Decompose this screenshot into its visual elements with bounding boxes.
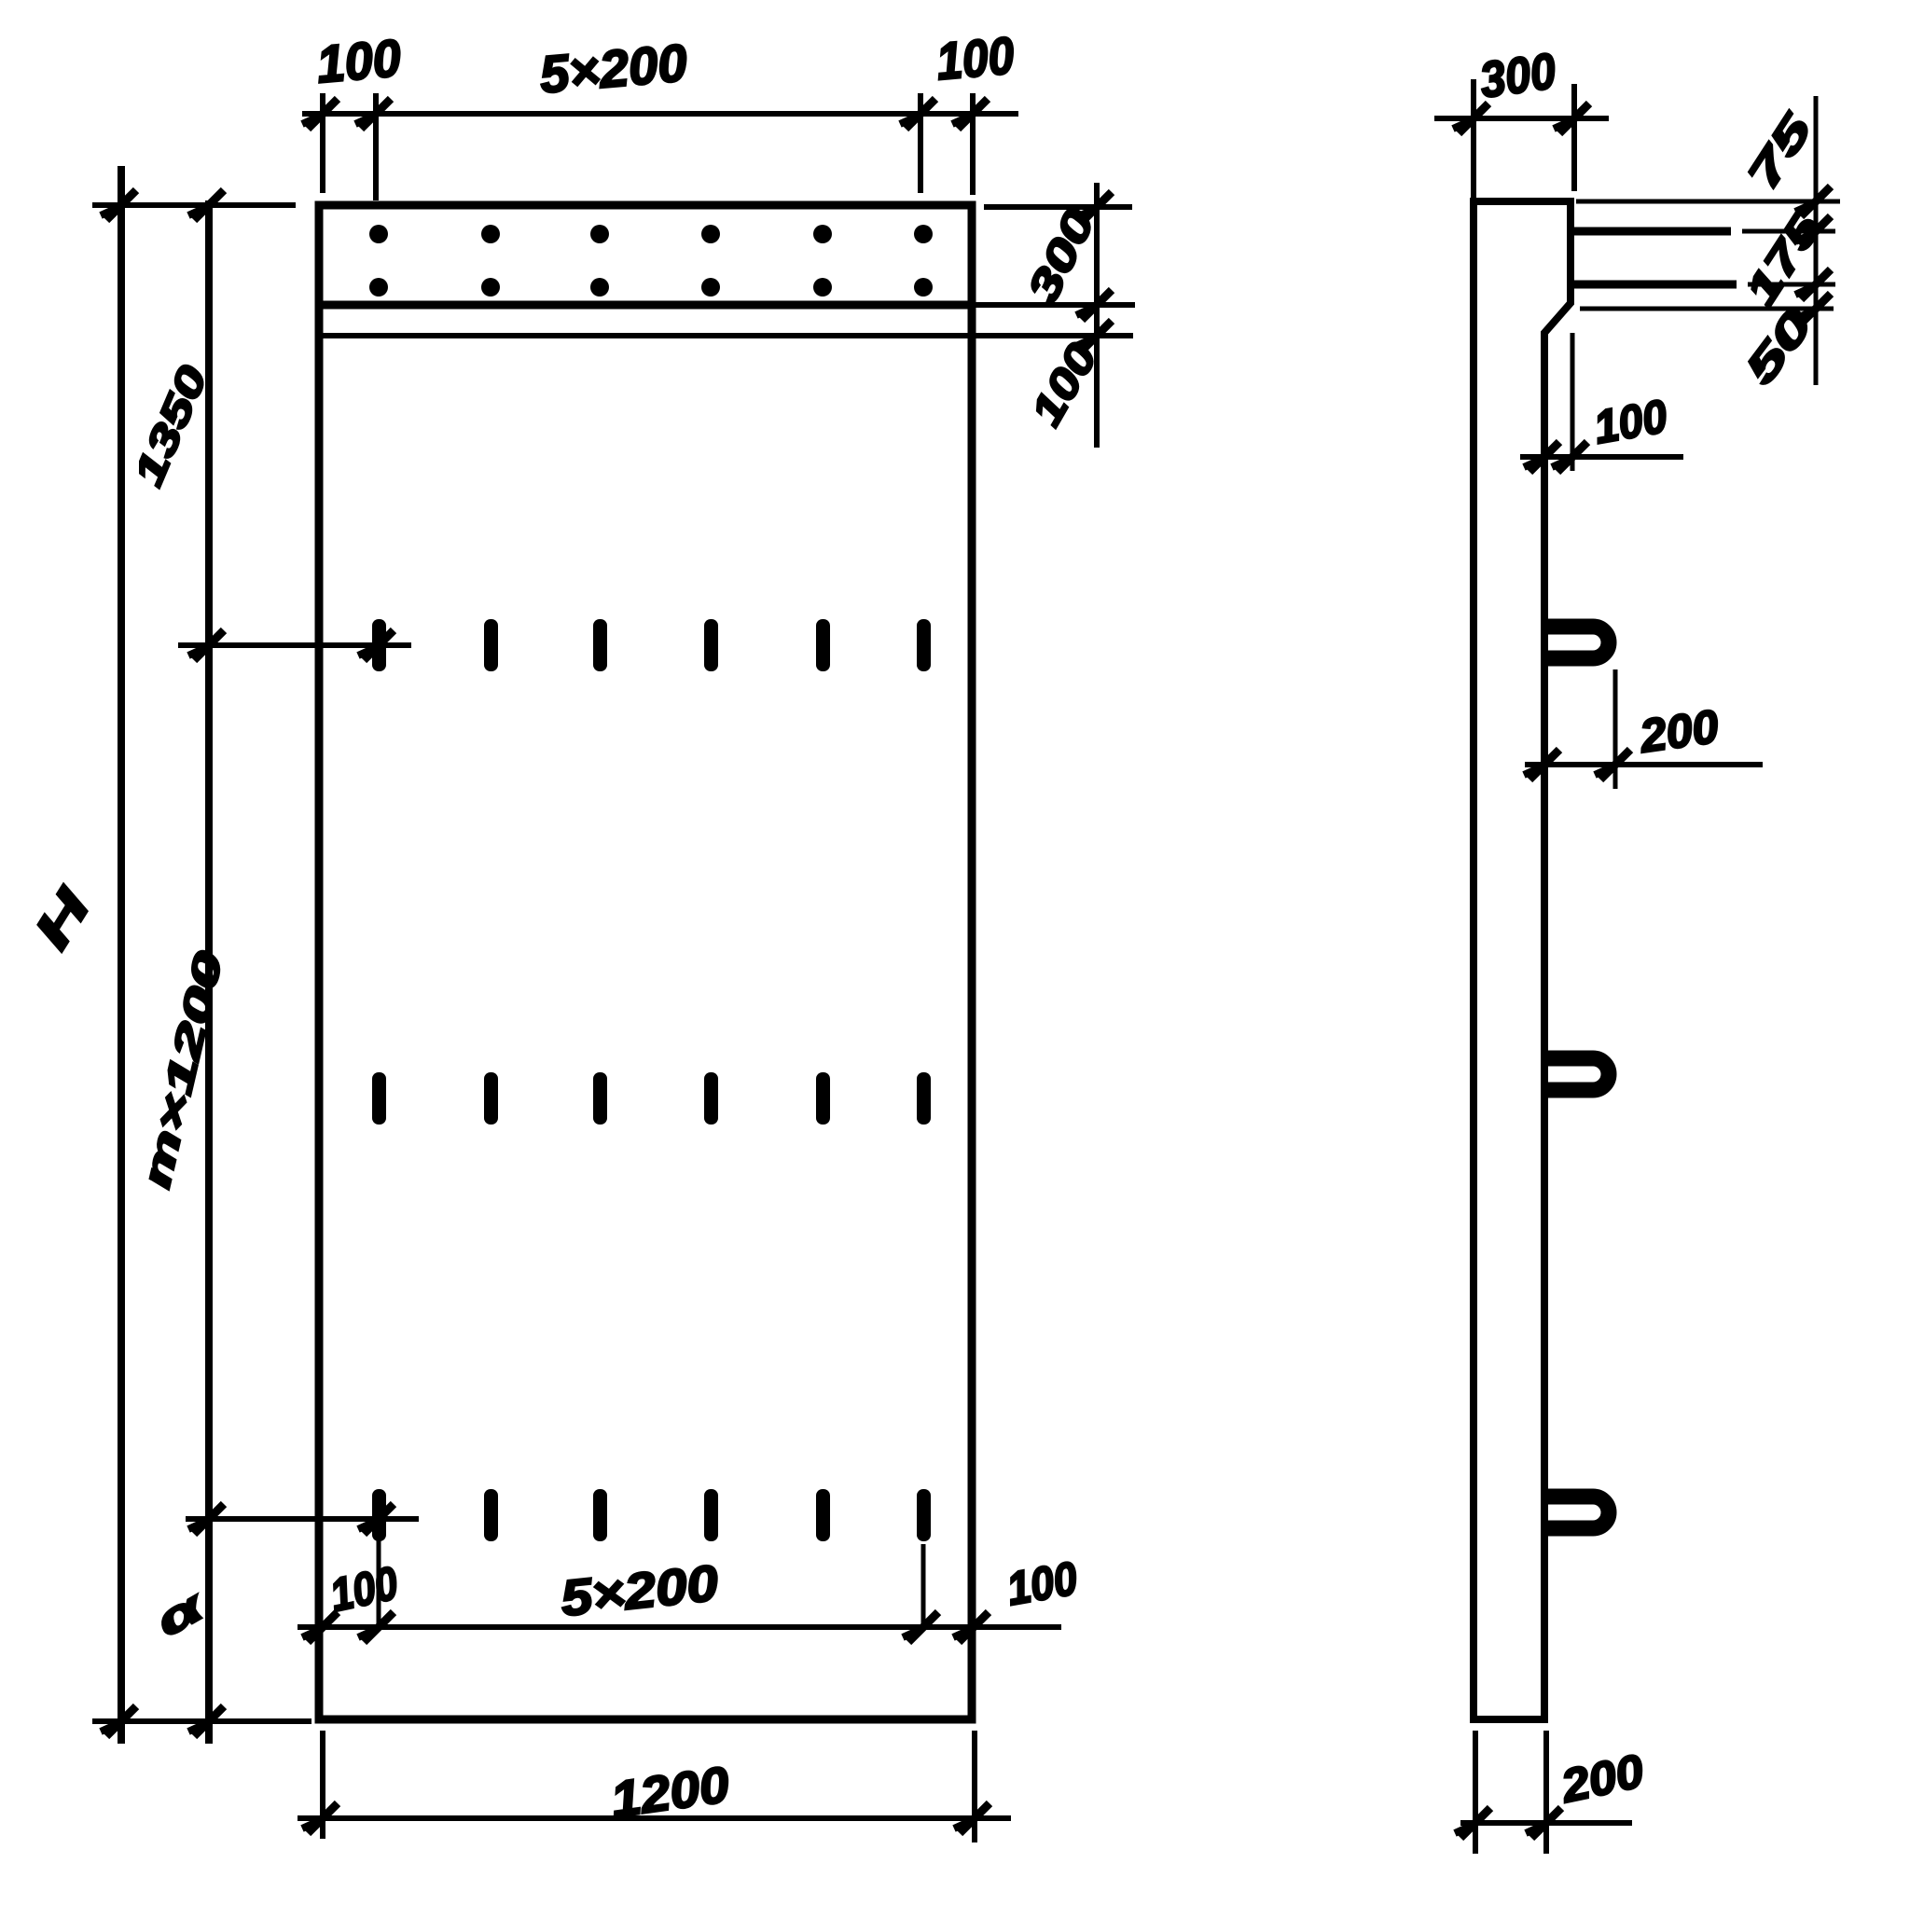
svg-text:200: 200 [1636,700,1722,763]
svg-text:100: 100 [314,28,403,94]
svg-text:300: 300 [1476,43,1559,109]
svg-text:100: 100 [934,25,1017,90]
